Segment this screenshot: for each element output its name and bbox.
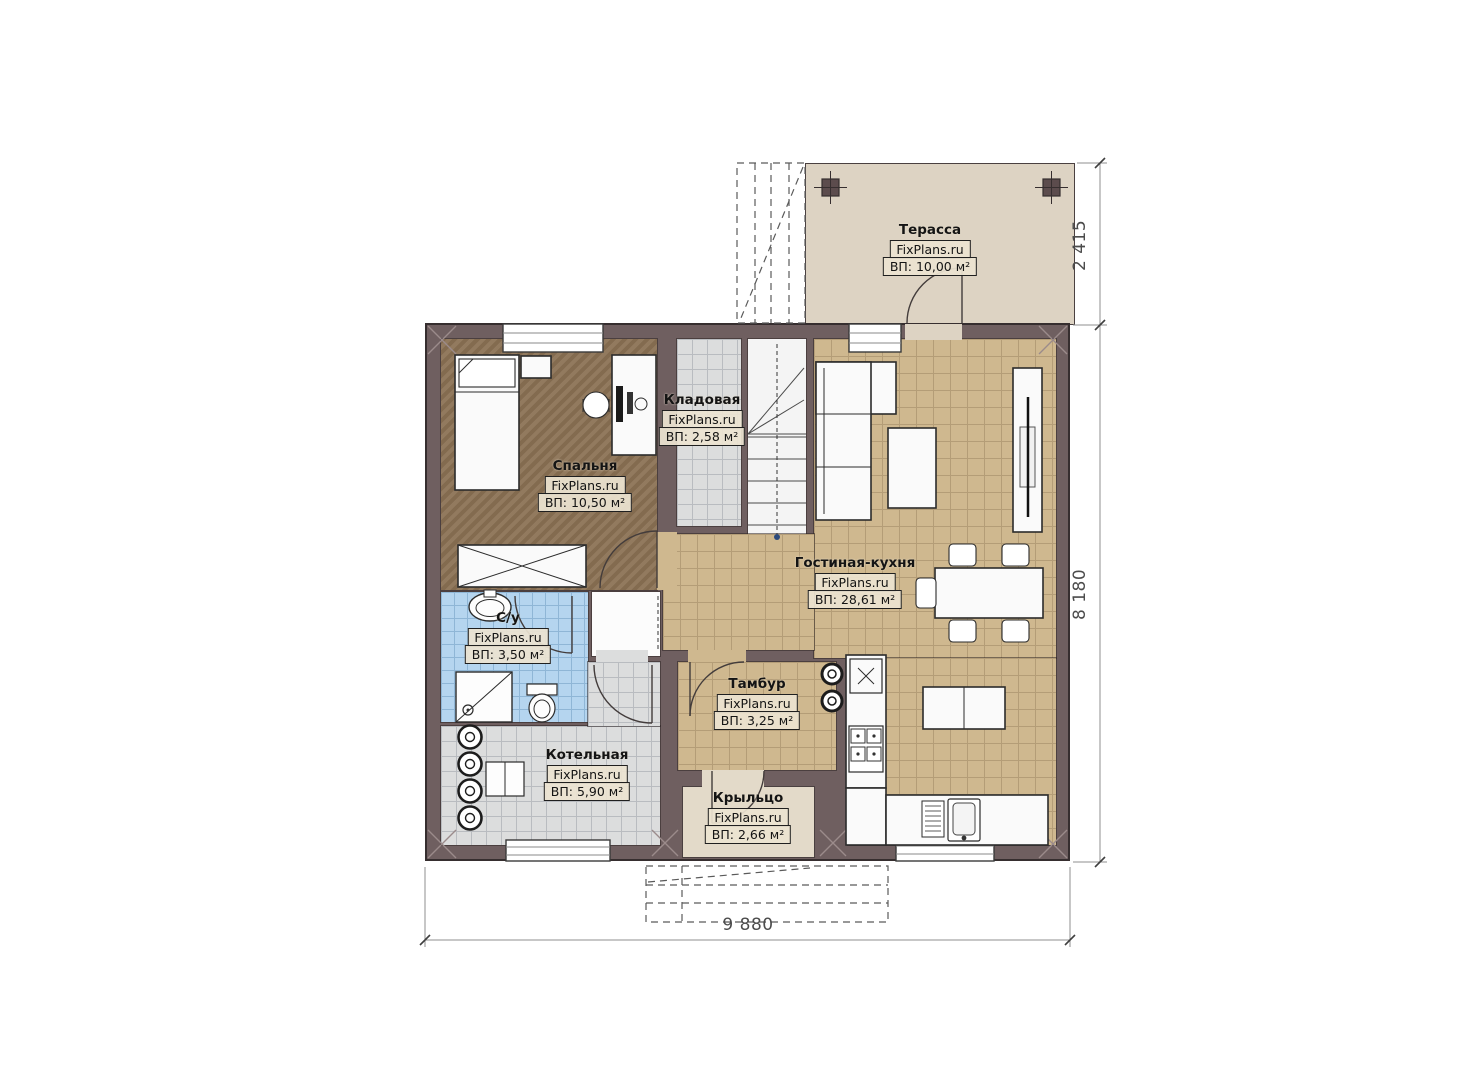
living-room-floor	[814, 339, 1056, 658]
watermark-vestibule: FixPlans.ru	[716, 694, 797, 713]
room-label-porch: Крыльцо FixPlans.ru ВП: 2,66 м²	[705, 790, 791, 844]
dimension-house-width: 9 880	[660, 915, 836, 935]
watermark-terrace: FixPlans.ru	[889, 240, 970, 259]
room-label-terrace: Терасса FixPlans.ru ВП: 10,00 м²	[883, 222, 977, 276]
watermark-storage: FixPlans.ru	[661, 410, 742, 429]
room-label-living-kitchen: Гостиная-кухня FixPlans.ru ВП: 28,61 м²	[795, 555, 916, 609]
stairwell-floor	[748, 339, 806, 542]
room-area-bathroom: ВП: 3,50 м²	[465, 645, 551, 664]
room-area-storage: ВП: 2,58 м²	[659, 427, 745, 446]
room-area-vestibule: ВП: 3,25 м²	[714, 711, 800, 730]
room-name-living-kitchen: Гостиная-кухня	[795, 555, 916, 571]
dimension-terrace-depth: 2 415	[1070, 199, 1094, 291]
hall-closet	[592, 592, 660, 656]
watermark-porch: FixPlans.ru	[707, 808, 788, 827]
room-area-terrace: ВП: 10,00 м²	[883, 257, 977, 276]
room-name-bathroom: С/у	[496, 610, 520, 626]
watermark-living-kitchen: FixPlans.ru	[814, 573, 895, 592]
watermark-boiler: FixPlans.ru	[546, 765, 627, 784]
upper-floor-dashed-projection	[737, 163, 805, 323]
room-label-bedroom: Спальня FixPlans.ru ВП: 10,50 м²	[538, 458, 632, 512]
room-name-storage: Кладовая	[664, 392, 741, 408]
entrance-steps-dashed	[646, 866, 888, 922]
room-area-bedroom: ВП: 10,50 м²	[538, 493, 632, 512]
room-area-living-kitchen: ВП: 28,61 м²	[808, 590, 902, 609]
room-name-terrace: Терасса	[899, 222, 961, 238]
boiler-floor-upper	[588, 662, 660, 726]
room-area-porch: ВП: 2,66 м²	[705, 825, 791, 844]
room-name-boiler: Котельная	[546, 747, 629, 763]
room-label-bathroom: С/у FixPlans.ru ВП: 3,50 м²	[465, 610, 551, 664]
room-name-bedroom: Спальня	[553, 458, 618, 474]
watermark-bedroom: FixPlans.ru	[544, 476, 625, 495]
room-area-boiler: ВП: 5,90 м²	[544, 782, 630, 801]
kitchen-floor	[848, 658, 1056, 845]
floor-plan: Терасса FixPlans.ru ВП: 10,00 м² Кладова…	[0, 0, 1473, 1080]
room-label-storage: Кладовая FixPlans.ru ВП: 2,58 м²	[659, 392, 745, 446]
dimension-house-depth: 8 180	[1070, 548, 1094, 640]
hall-floor	[663, 534, 814, 650]
room-name-porch: Крыльцо	[713, 790, 784, 806]
room-name-vestibule: Тамбур	[728, 676, 785, 692]
room-label-boiler: Котельная FixPlans.ru ВП: 5,90 м²	[544, 747, 630, 801]
room-label-vestibule: Тамбур FixPlans.ru ВП: 3,25 м²	[714, 676, 800, 730]
watermark-bathroom: FixPlans.ru	[467, 628, 548, 647]
